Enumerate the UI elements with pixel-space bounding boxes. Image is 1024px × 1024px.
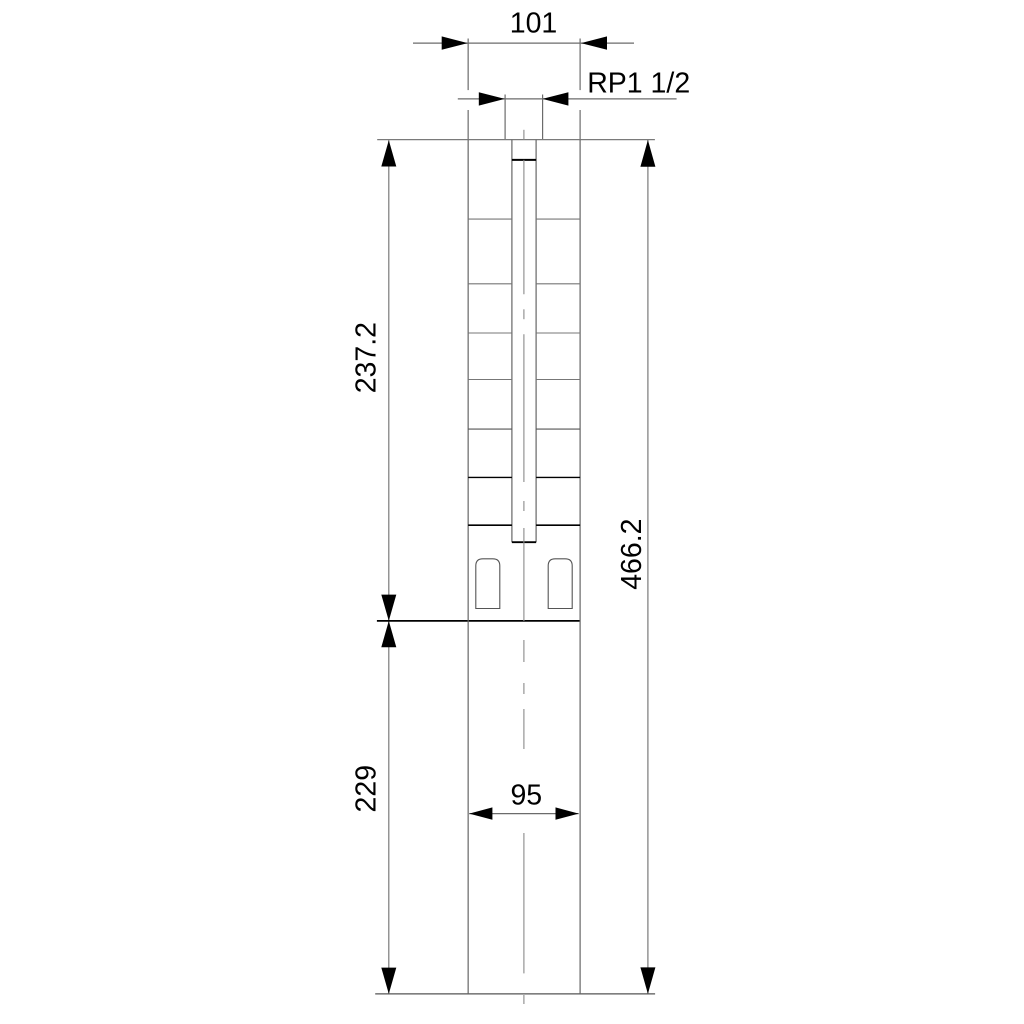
svg-text:95: 95 [510,780,542,812]
svg-text:RP1 1/2: RP1 1/2 [587,68,690,100]
svg-text:237.2: 237.2 [351,322,383,393]
svg-text:101: 101 [510,7,558,39]
svg-text:466.2: 466.2 [616,518,648,589]
svg-text:229: 229 [350,765,382,813]
